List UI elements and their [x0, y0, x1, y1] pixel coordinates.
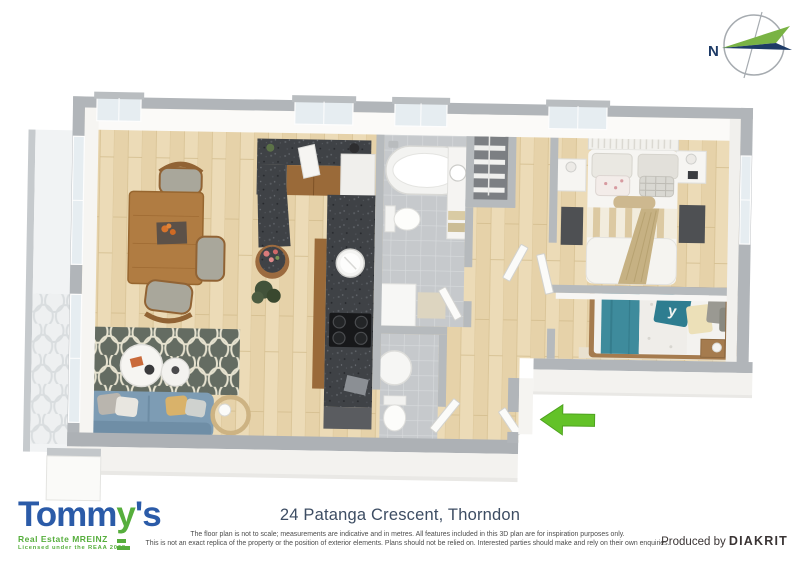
railing: [46, 448, 101, 501]
credit-prefix: Produced by: [661, 536, 729, 548]
entry-arrow-icon: [540, 404, 595, 435]
key-icon: [117, 538, 133, 552]
brand-logo: Tommy's Real Estate MREINZ Licensed unde…: [18, 497, 208, 551]
sofa: [83, 391, 214, 439]
bedside-table: [701, 339, 725, 357]
nightstand-left: [556, 159, 587, 192]
floorplan-page: y: [0, 0, 800, 566]
double-bed: [586, 131, 679, 285]
compass-north-label: N: [708, 43, 719, 60]
logo-license: Licensed under the REAA 2008: [18, 546, 208, 552]
nightstand-right: [676, 151, 707, 184]
compass-icon: N: [706, 4, 798, 90]
balcony: [23, 129, 76, 452]
floorplan-3d-render: y: [0, 0, 800, 566]
credit-brand: DIAKRIT: [729, 534, 788, 548]
hot-water-cylinder: [377, 351, 412, 386]
cooktop: [329, 313, 372, 348]
logo-tagline: Real Estate MREINZ: [18, 535, 208, 544]
laundry-cabinet: [379, 284, 416, 327]
logo-wordmark: Tommy's: [18, 497, 208, 532]
kitchen-sink: [336, 249, 364, 277]
credit-line: Produced by DIAKRIT: [661, 534, 788, 548]
